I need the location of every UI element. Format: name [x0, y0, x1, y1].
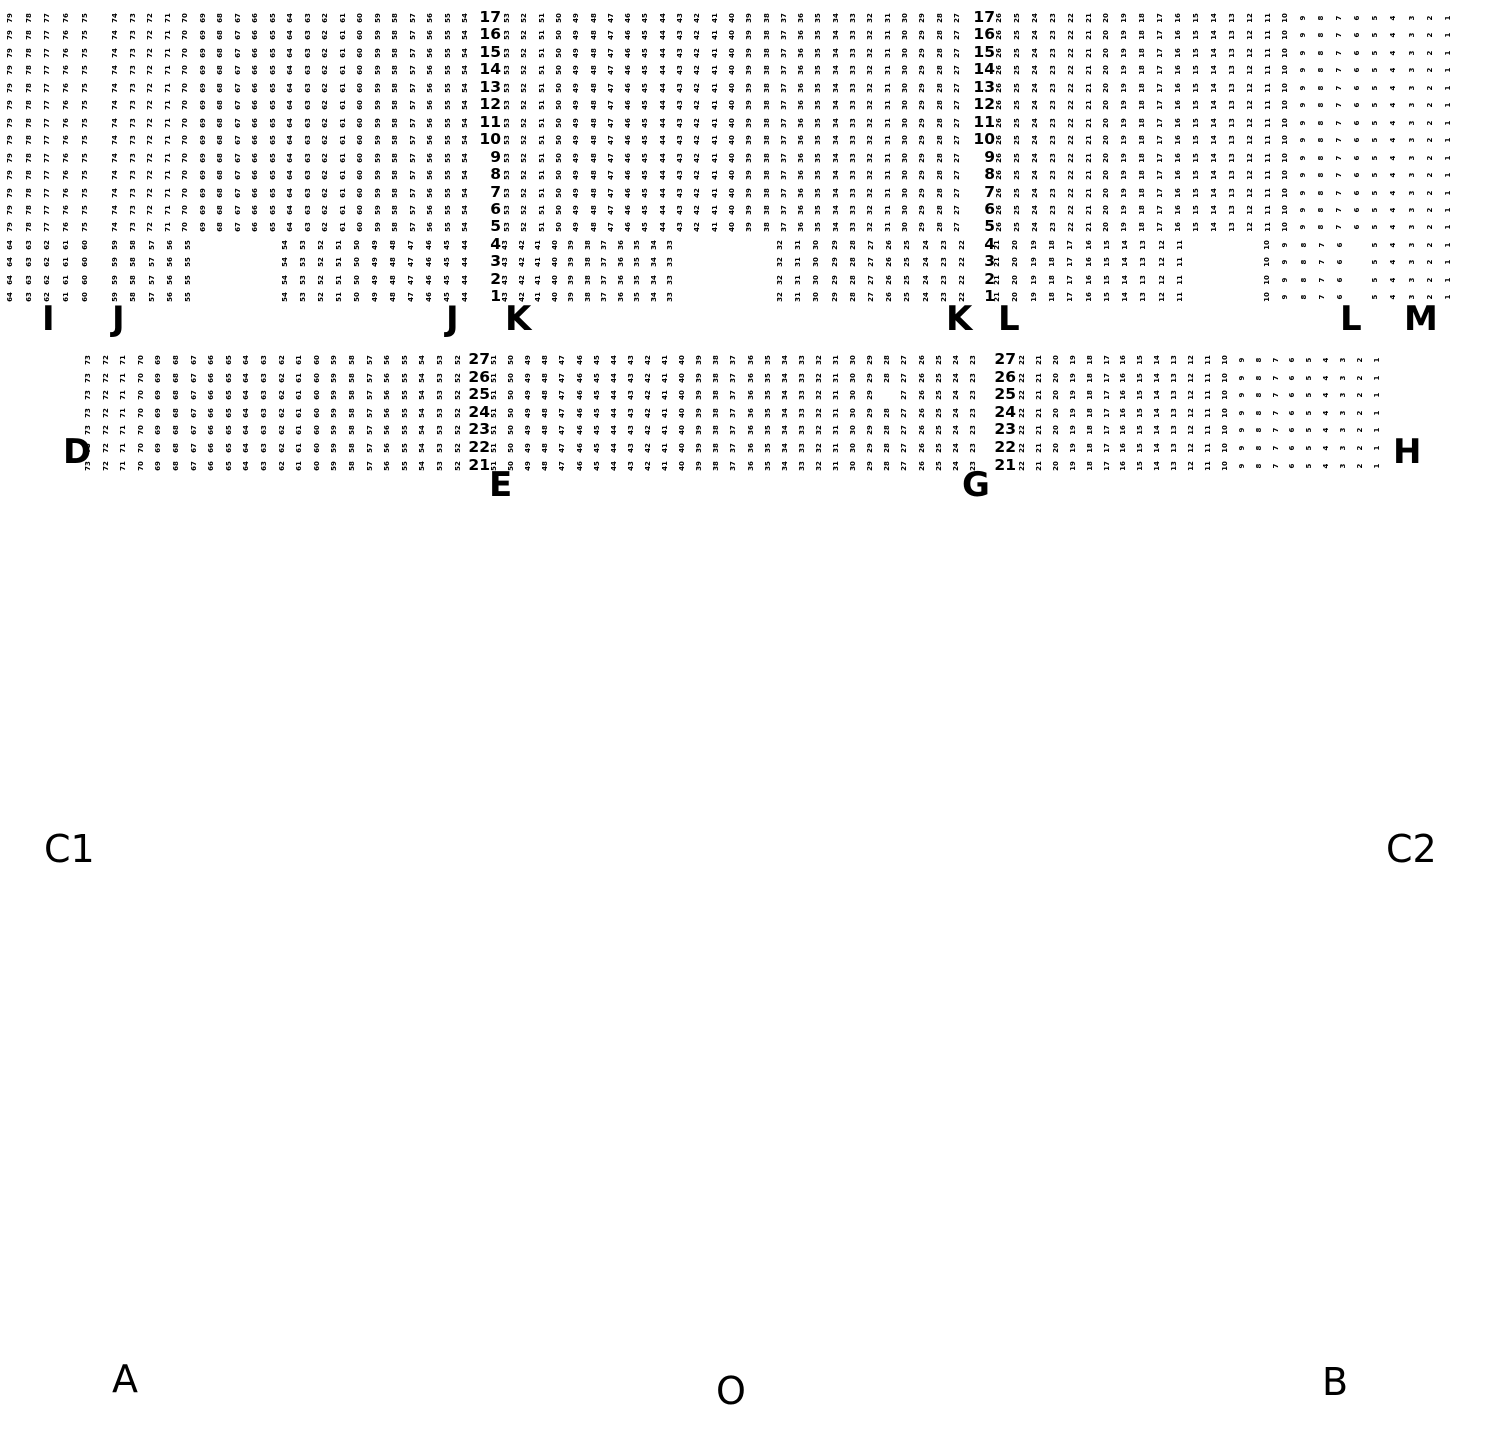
seat[interactable]: 60 — [77, 289, 93, 305]
seat[interactable]: 9 — [1295, 202, 1311, 218]
seat[interactable]: 55 — [440, 80, 456, 96]
seat[interactable]: 26 — [914, 422, 930, 438]
seat[interactable]: 33 — [845, 150, 861, 166]
seat[interactable]: 61 — [335, 132, 351, 148]
seat[interactable]: 20 — [1098, 45, 1114, 61]
seat[interactable]: 50 — [349, 289, 365, 305]
seat[interactable]: 34 — [828, 27, 844, 43]
seat[interactable]: 75 — [77, 167, 93, 183]
seat[interactable]: 3 — [1404, 185, 1420, 201]
seat[interactable]: 4 — [1385, 132, 1401, 148]
seat[interactable]: 37 — [725, 387, 741, 403]
seat[interactable]: 15 — [1188, 10, 1204, 26]
seat[interactable]: 4 — [1385, 45, 1401, 61]
seat[interactable]: 16 — [1115, 387, 1131, 403]
seat[interactable]: 78 — [21, 115, 37, 131]
seat[interactable]: 55 — [397, 370, 413, 386]
seat[interactable]: 56 — [379, 458, 395, 474]
seat[interactable]: 5 — [1367, 219, 1383, 235]
seat[interactable]: 16 — [1115, 405, 1131, 421]
seat[interactable]: 64 — [2, 289, 18, 305]
seat[interactable]: 42 — [640, 352, 656, 368]
seat[interactable]: 76 — [58, 80, 74, 96]
seat[interactable]: 42 — [689, 97, 705, 113]
seat[interactable]: 25 — [899, 237, 915, 253]
seat[interactable]: 57 — [405, 115, 421, 131]
seat[interactable]: 58 — [387, 80, 403, 96]
seat[interactable]: 32 — [862, 45, 878, 61]
seat[interactable]: 23 — [965, 387, 981, 403]
seat[interactable]: 50 — [503, 405, 519, 421]
seat[interactable]: 63 — [300, 132, 316, 148]
seat[interactable]: 2 — [1422, 27, 1438, 43]
seat[interactable]: 34 — [777, 440, 793, 456]
seat[interactable]: 68 — [212, 132, 228, 148]
seat[interactable]: 31 — [880, 62, 896, 78]
seat[interactable]: 9 — [1295, 62, 1311, 78]
seat[interactable]: 32 — [862, 115, 878, 131]
seat[interactable]: 24 — [1027, 45, 1043, 61]
seat[interactable]: 1 — [1440, 237, 1456, 253]
seat[interactable]: 53 — [295, 272, 311, 288]
seat[interactable]: 52 — [516, 167, 532, 183]
seat[interactable]: 15 — [1188, 97, 1204, 113]
seat[interactable]: 11 — [1260, 45, 1276, 61]
seat[interactable]: 1 — [1440, 150, 1456, 166]
seat[interactable]: 31 — [880, 45, 896, 61]
seat[interactable]: 18 — [1134, 185, 1150, 201]
seat[interactable]: 35 — [810, 62, 826, 78]
seat[interactable]: 14 — [1206, 167, 1222, 183]
seat[interactable]: 25 — [1009, 80, 1025, 96]
seat[interactable]: 17 — [1152, 167, 1168, 183]
seat[interactable]: 77 — [39, 10, 55, 26]
seat[interactable]: 11 — [1260, 80, 1276, 96]
seat[interactable]: 22 — [1014, 387, 1030, 403]
seat[interactable]: 12 — [1154, 272, 1170, 288]
seat[interactable]: 33 — [845, 27, 861, 43]
seat[interactable]: 41 — [657, 440, 673, 456]
seat[interactable]: 57 — [362, 370, 378, 386]
seat[interactable]: 9 — [1234, 458, 1250, 474]
seat[interactable]: 76 — [58, 202, 74, 218]
seat[interactable]: 32 — [811, 405, 827, 421]
seat[interactable]: 73 — [125, 27, 141, 43]
seat[interactable]: 45 — [637, 202, 653, 218]
seat[interactable]: 4 — [1385, 150, 1401, 166]
seat[interactable]: 42 — [689, 219, 705, 235]
seat[interactable]: 42 — [689, 167, 705, 183]
seat[interactable]: 64 — [238, 440, 254, 456]
seat[interactable]: 23 — [1045, 219, 1061, 235]
seat[interactable]: 36 — [743, 440, 759, 456]
seat[interactable]: 3 — [1404, 150, 1420, 166]
seat[interactable]: 18 — [1134, 80, 1150, 96]
seat[interactable]: 28 — [932, 97, 948, 113]
seat[interactable]: 14 — [1149, 352, 1165, 368]
seat[interactable]: 37 — [776, 27, 792, 43]
seat[interactable]: 68 — [212, 97, 228, 113]
seat[interactable]: 24 — [948, 422, 964, 438]
seat[interactable]: 68 — [168, 422, 184, 438]
seat[interactable]: 7 — [1331, 185, 1347, 201]
seat[interactable]: 36 — [613, 289, 629, 305]
seat[interactable]: 69 — [195, 10, 211, 26]
seat[interactable]: 38 — [759, 80, 775, 96]
seat[interactable]: 50 — [551, 27, 567, 43]
seat[interactable]: 52 — [313, 254, 329, 270]
seat[interactable]: 57 — [405, 150, 421, 166]
seat[interactable]: 66 — [247, 97, 263, 113]
seat[interactable]: 26 — [881, 272, 897, 288]
seat[interactable]: 6 — [1349, 132, 1365, 148]
seat[interactable]: 41 — [707, 185, 723, 201]
seat[interactable]: 33 — [845, 115, 861, 131]
seat[interactable]: 64 — [282, 150, 298, 166]
seat[interactable]: 32 — [862, 27, 878, 43]
seat[interactable]: 11 — [1172, 289, 1188, 305]
seat[interactable]: 37 — [596, 289, 612, 305]
seat[interactable]: 51 — [534, 202, 550, 218]
seat[interactable]: 12 — [1183, 387, 1199, 403]
seat[interactable]: 56 — [422, 167, 438, 183]
seat[interactable]: 4 — [1385, 62, 1401, 78]
seat[interactable]: 73 — [125, 219, 141, 235]
seat[interactable]: 33 — [794, 422, 810, 438]
seat[interactable]: 60 — [77, 272, 93, 288]
seat[interactable]: 19 — [1065, 370, 1081, 386]
seat[interactable]: 34 — [646, 254, 662, 270]
seat[interactable]: 22 — [1014, 440, 1030, 456]
seat[interactable]: 34 — [646, 272, 662, 288]
seat[interactable]: 31 — [880, 132, 896, 148]
seat[interactable]: 25 — [1009, 167, 1025, 183]
seat[interactable]: 8 — [1313, 167, 1329, 183]
seat[interactable]: 55 — [440, 150, 456, 166]
seat[interactable]: 61 — [335, 45, 351, 61]
seat[interactable]: 23 — [965, 352, 981, 368]
seat[interactable]: 22 — [1063, 45, 1079, 61]
seat[interactable]: 3 — [1404, 254, 1420, 270]
seat[interactable]: 12 — [1154, 254, 1170, 270]
seat[interactable]: 46 — [572, 352, 588, 368]
seat[interactable]: 65 — [265, 97, 281, 113]
seat[interactable]: 78 — [21, 62, 37, 78]
seat[interactable]: 64 — [282, 45, 298, 61]
seat[interactable]: 15 — [1188, 115, 1204, 131]
seat[interactable]: 25 — [931, 405, 947, 421]
seat[interactable]: 11 — [1200, 370, 1216, 386]
seat[interactable]: 43 — [672, 62, 688, 78]
seat[interactable]: 11 — [1172, 272, 1188, 288]
seat[interactable]: 25 — [899, 289, 915, 305]
seat[interactable]: 59 — [370, 27, 386, 43]
seat[interactable]: 25 — [1009, 185, 1025, 201]
seat[interactable]: 76 — [58, 10, 74, 26]
seat[interactable]: 45 — [637, 115, 653, 131]
seat[interactable]: 15 — [1188, 219, 1204, 235]
seat[interactable]: 39 — [741, 27, 757, 43]
seat[interactable]: 47 — [403, 254, 419, 270]
seat[interactable]: 68 — [212, 80, 228, 96]
seat[interactable]: 41 — [707, 167, 723, 183]
seat[interactable]: 32 — [772, 254, 788, 270]
seat[interactable]: 20 — [1098, 10, 1114, 26]
seat[interactable]: 57 — [405, 62, 421, 78]
seat[interactable]: 14 — [1149, 370, 1165, 386]
seat[interactable]: 74 — [107, 132, 123, 148]
seat[interactable]: 13 — [1135, 289, 1151, 305]
seat[interactable]: 45 — [589, 458, 605, 474]
seat[interactable]: 17 — [1099, 440, 1115, 456]
seat[interactable]: 59 — [326, 405, 342, 421]
seat[interactable]: 16 — [1115, 440, 1131, 456]
seat[interactable]: 2 — [1422, 45, 1438, 61]
seat[interactable]: 63 — [300, 167, 316, 183]
seat[interactable]: 17 — [1062, 237, 1078, 253]
seat[interactable]: 71 — [160, 27, 176, 43]
seat[interactable]: 64 — [282, 219, 298, 235]
seat[interactable]: 25 — [1009, 10, 1025, 26]
seat[interactable]: 8 — [1313, 27, 1329, 43]
seat[interactable]: 56 — [422, 202, 438, 218]
seat[interactable]: 46 — [620, 150, 636, 166]
seat[interactable]: 49 — [520, 352, 536, 368]
seat[interactable]: 53 — [499, 202, 515, 218]
seat[interactable]: 66 — [247, 80, 263, 96]
seat[interactable]: 67 — [186, 440, 202, 456]
seat[interactable]: 49 — [367, 254, 383, 270]
seat[interactable]: 39 — [741, 132, 757, 148]
seat[interactable]: 6 — [1349, 202, 1365, 218]
seat[interactable]: 37 — [725, 405, 741, 421]
seat[interactable]: 3 — [1404, 132, 1420, 148]
seat[interactable]: 72 — [98, 370, 114, 386]
seat[interactable]: 45 — [589, 440, 605, 456]
seat[interactable]: 63 — [300, 185, 316, 201]
seat[interactable]: 6 — [1349, 45, 1365, 61]
seat[interactable]: 22 — [1063, 97, 1079, 113]
seat[interactable]: 18 — [1134, 132, 1150, 148]
seat[interactable]: 78 — [21, 219, 37, 235]
seat[interactable]: 69 — [195, 185, 211, 201]
seat[interactable]: 4 — [1318, 422, 1334, 438]
seat[interactable]: 67 — [230, 167, 246, 183]
seat[interactable]: 53 — [499, 62, 515, 78]
seat[interactable]: 68 — [168, 405, 184, 421]
seat[interactable]: 6 — [1332, 272, 1348, 288]
seat[interactable]: 6 — [1349, 62, 1365, 78]
seat[interactable]: 43 — [623, 458, 639, 474]
seat[interactable]: 55 — [440, 27, 456, 43]
seat[interactable]: 53 — [499, 185, 515, 201]
seat[interactable]: 15 — [1132, 458, 1148, 474]
seat[interactable]: 72 — [98, 458, 114, 474]
seat[interactable]: 21 — [1081, 62, 1097, 78]
seat[interactable]: 16 — [1081, 254, 1097, 270]
seat[interactable]: 8 — [1313, 219, 1329, 235]
seat[interactable]: 75 — [77, 27, 93, 43]
seat[interactable]: 31 — [828, 440, 844, 456]
seat[interactable]: 29 — [827, 254, 843, 270]
seat[interactable]: 20 — [1048, 458, 1064, 474]
seat[interactable]: 18 — [1134, 150, 1150, 166]
seat[interactable]: 8 — [1313, 97, 1329, 113]
seat[interactable]: 16 — [1170, 97, 1186, 113]
seat[interactable]: 61 — [58, 237, 74, 253]
seat[interactable]: 38 — [759, 97, 775, 113]
seat[interactable]: 50 — [551, 80, 567, 96]
seat[interactable]: 7 — [1314, 289, 1330, 305]
seat[interactable]: 31 — [880, 202, 896, 218]
seat[interactable]: 65 — [265, 219, 281, 235]
seat[interactable]: 29 — [914, 97, 930, 113]
seat[interactable]: 1 — [1440, 202, 1456, 218]
seat[interactable]: 5 — [1301, 440, 1317, 456]
seat[interactable]: 72 — [142, 10, 158, 26]
seat[interactable]: 48 — [586, 150, 602, 166]
seat[interactable]: 60 — [352, 62, 368, 78]
seat[interactable]: 10 — [1277, 167, 1293, 183]
seat[interactable]: 18 — [1134, 45, 1150, 61]
seat[interactable]: 63 — [300, 62, 316, 78]
seat[interactable]: 20 — [1098, 115, 1114, 131]
seat[interactable]: 49 — [568, 115, 584, 131]
seat[interactable]: 17 — [1152, 150, 1168, 166]
seat[interactable]: 62 — [317, 167, 333, 183]
seat[interactable]: 23 — [965, 405, 981, 421]
seat[interactable]: 33 — [794, 440, 810, 456]
seat[interactable]: 55 — [440, 167, 456, 183]
seat[interactable]: 34 — [828, 132, 844, 148]
seat[interactable]: 75 — [77, 80, 93, 96]
seat[interactable]: 60 — [352, 219, 368, 235]
seat[interactable]: 62 — [274, 370, 290, 386]
seat[interactable]: 59 — [370, 185, 386, 201]
seat[interactable]: 72 — [142, 202, 158, 218]
seat[interactable]: 56 — [422, 150, 438, 166]
seat[interactable]: 77 — [39, 167, 55, 183]
seat[interactable]: 2 — [1422, 115, 1438, 131]
seat[interactable]: 53 — [499, 80, 515, 96]
seat[interactable]: 66 — [247, 45, 263, 61]
seat[interactable]: 69 — [195, 150, 211, 166]
seat[interactable]: 25 — [1009, 97, 1025, 113]
seat[interactable]: 71 — [160, 45, 176, 61]
seat[interactable]: 46 — [572, 422, 588, 438]
seat[interactable]: 55 — [180, 254, 196, 270]
seat[interactable]: 55 — [180, 237, 196, 253]
seat[interactable]: 43 — [672, 167, 688, 183]
seat[interactable]: 31 — [828, 422, 844, 438]
seat[interactable]: 7 — [1268, 405, 1284, 421]
seat[interactable]: 22 — [1014, 405, 1030, 421]
seat[interactable]: 32 — [862, 80, 878, 96]
seat[interactable]: 72 — [142, 150, 158, 166]
seat[interactable]: 34 — [646, 237, 662, 253]
seat[interactable]: 25 — [899, 272, 915, 288]
seat[interactable]: 50 — [503, 440, 519, 456]
seat[interactable]: 5 — [1301, 422, 1317, 438]
seat[interactable]: 40 — [724, 167, 740, 183]
seat[interactable]: 60 — [352, 45, 368, 61]
seat[interactable]: 60 — [77, 254, 93, 270]
seat[interactable]: 3 — [1404, 10, 1420, 26]
seat[interactable]: 30 — [808, 254, 824, 270]
seat[interactable]: 61 — [291, 458, 307, 474]
seat[interactable]: 46 — [620, 219, 636, 235]
seat[interactable]: 15 — [1188, 167, 1204, 183]
seat[interactable]: 32 — [862, 62, 878, 78]
seat[interactable]: 21 — [1031, 458, 1047, 474]
seat[interactable]: 72 — [98, 387, 114, 403]
seat[interactable]: 12 — [1242, 115, 1258, 131]
seat[interactable]: 1 — [1440, 219, 1456, 235]
seat[interactable]: 29 — [914, 150, 930, 166]
seat[interactable]: 45 — [637, 219, 653, 235]
seat[interactable]: 11 — [1200, 422, 1216, 438]
seat[interactable]: 38 — [759, 167, 775, 183]
seat[interactable]: 28 — [879, 458, 895, 474]
seat[interactable]: 17 — [1152, 27, 1168, 43]
seat[interactable]: 35 — [810, 97, 826, 113]
seat[interactable]: 3 — [1335, 458, 1351, 474]
seat[interactable]: 38 — [708, 352, 724, 368]
seat[interactable]: 21 — [1031, 387, 1047, 403]
seat[interactable]: 57 — [405, 185, 421, 201]
seat[interactable]: 73 — [80, 387, 96, 403]
seat[interactable]: 3 — [1404, 272, 1420, 288]
seat[interactable]: 34 — [828, 167, 844, 183]
seat[interactable]: 49 — [520, 405, 536, 421]
seat[interactable]: 70 — [177, 45, 193, 61]
seat[interactable]: 10 — [1217, 458, 1233, 474]
seat[interactable]: 32 — [862, 10, 878, 26]
seat[interactable]: 38 — [759, 27, 775, 43]
seat[interactable]: 60 — [352, 27, 368, 43]
seat[interactable]: 58 — [344, 387, 360, 403]
seat[interactable]: 48 — [586, 115, 602, 131]
seat[interactable]: 30 — [808, 237, 824, 253]
seat[interactable]: 30 — [897, 219, 913, 235]
seat[interactable]: 36 — [793, 219, 809, 235]
seat[interactable]: 2 — [1422, 10, 1438, 26]
seat[interactable]: 23 — [1045, 132, 1061, 148]
seat[interactable]: 12 — [1183, 458, 1199, 474]
seat[interactable]: 75 — [77, 115, 93, 131]
seat[interactable]: 34 — [828, 219, 844, 235]
seat[interactable]: 76 — [58, 27, 74, 43]
seat[interactable]: 69 — [195, 219, 211, 235]
seat[interactable]: 36 — [743, 387, 759, 403]
seat[interactable]: 8 — [1251, 387, 1267, 403]
seat[interactable]: 61 — [335, 62, 351, 78]
seat[interactable]: 74 — [107, 167, 123, 183]
seat[interactable]: 49 — [520, 458, 536, 474]
seat[interactable]: 39 — [563, 272, 579, 288]
seat[interactable]: 57 — [362, 458, 378, 474]
seat[interactable]: 59 — [326, 422, 342, 438]
seat[interactable]: 42 — [689, 45, 705, 61]
seat[interactable]: 31 — [828, 370, 844, 386]
seat[interactable]: 52 — [313, 272, 329, 288]
seat[interactable]: 40 — [724, 219, 740, 235]
seat[interactable]: 58 — [387, 45, 403, 61]
seat[interactable]: 48 — [586, 132, 602, 148]
seat[interactable]: 56 — [422, 219, 438, 235]
seat[interactable]: 70 — [133, 405, 149, 421]
seat[interactable]: 63 — [300, 27, 316, 43]
